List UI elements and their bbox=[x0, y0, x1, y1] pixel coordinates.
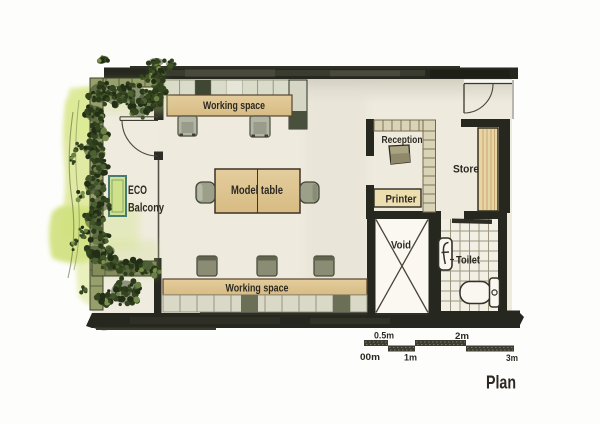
svg-text:Reception: Reception bbox=[382, 135, 423, 146]
svg-text:3m: 3m bbox=[506, 353, 518, 364]
svg-text:Printer: Printer bbox=[386, 194, 418, 206]
svg-text:ECO: ECO bbox=[128, 183, 147, 197]
svg-text:Model table: Model table bbox=[231, 183, 283, 197]
svg-text:00m: 00m bbox=[360, 352, 380, 363]
svg-text:Toilet: Toilet bbox=[456, 255, 480, 267]
svg-text:Balcony: Balcony bbox=[128, 201, 164, 215]
svg-text:Void: Void bbox=[391, 240, 411, 252]
svg-text:Working space: Working space bbox=[226, 283, 289, 295]
svg-text:Store: Store bbox=[453, 164, 479, 176]
svg-text:0.5m: 0.5m bbox=[374, 331, 394, 342]
svg-text:1m: 1m bbox=[404, 353, 417, 364]
svg-text:Working space: Working space bbox=[203, 100, 265, 112]
svg-text:Plan: Plan bbox=[486, 372, 516, 393]
svg-text:2m: 2m bbox=[455, 331, 469, 342]
